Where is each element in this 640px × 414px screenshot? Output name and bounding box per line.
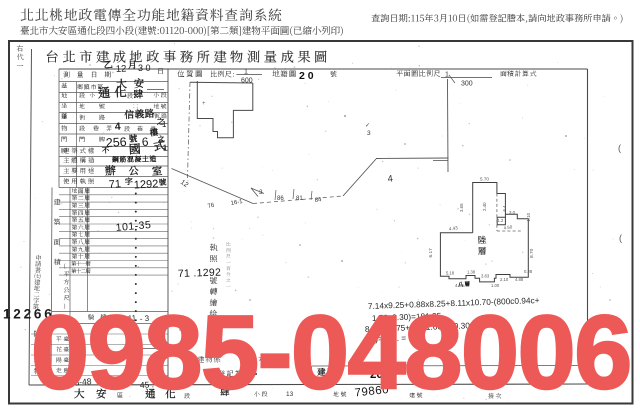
svg-text:一: 一 [226,283,231,290]
svg-text:肆: 肆 [133,85,145,101]
svg-text:臺北市大安區通化段四小段(建號:01120-000)[第二類: 臺北市大安區通化段四小段(建號:01120-000)[第二類]建物平面圖(已縮小… [20,23,344,37]
svg-text:4.88: 4.88 [515,277,524,282]
svg-text:0.28: 0.28 [524,269,533,274]
svg-text:街: 街 [79,112,86,121]
svg-text:巷: 巷 [136,124,143,133]
svg-text:81: 81 [296,196,303,202]
svg-text:比例尺:: 比例尺: [210,70,235,80]
svg-text:地: 地 [79,101,85,110]
svg-text:1.10: 1.10 [526,212,531,221]
svg-text:2.40: 2.40 [482,202,487,211]
svg-text:巷: 巷 [92,123,99,132]
svg-text:坐: 坐 [61,101,68,110]
svg-text:71 .1292: 71 .1292 [178,266,222,280]
svg-text:段: 段 [124,124,130,133]
svg-text:地: 地 [61,91,67,100]
svg-text:小: 小 [90,91,96,99]
svg-text:號: 號 [98,101,105,110]
svg-text:平面圖比例尺: 平面圖比例尺 [396,69,441,79]
svg-text:物: 物 [61,123,68,132]
svg-text:式: 式 [152,136,166,155]
svg-text:使用執照: 使用執照 [63,177,96,186]
svg-text:4: 4 [114,121,121,133]
svg-text:1.38: 1.38 [467,270,476,275]
svg-text:面積計算式: 面積計算式 [500,68,537,78]
svg-text:地號: 地號 [154,102,169,111]
svg-text:號: 號 [330,68,337,78]
svg-text:路: 路 [99,112,105,121]
svg-text:北北桃地政電傳全功能地籍資料查詢系統: 北北桃地政電傳全功能地籍資料查詢系統 [20,4,283,24]
svg-text:日: 日 [157,67,164,77]
svg-text:2 0: 2 0 [299,70,314,82]
svg-text:第十二層: 第十二層 [71,267,91,275]
svg-text:月: 月 [127,58,137,71]
svg-text:基: 基 [61,81,68,90]
svg-text:字: 字 [125,176,134,187]
svg-text:段: 段 [79,123,85,132]
svg-text:執: 執 [210,242,218,253]
svg-text:(: ( [618,143,621,153]
svg-text:面: 面 [54,238,61,248]
svg-text:台北市建成地政事務所建物測量成果圖: 台北市建成地政事務所建物測量成果圖 [46,46,331,65]
svg-text:1.2: 1.2 [498,218,504,223]
svg-text:不: 不 [102,145,111,156]
svg-text:一: 一 [17,61,24,71]
svg-text:5.70: 5.70 [480,177,489,182]
svg-text:弄: 弄 [106,123,112,132]
svg-text:辦: 辦 [104,162,116,179]
svg-text:(: ( [619,233,622,243]
svg-text:位置圖: 位置圖 [177,68,204,79]
svg-text:主體構造: 主體構造 [63,156,96,165]
svg-text:層: 層 [477,245,487,258]
svg-text:信義路: 信義路 [124,106,156,122]
svg-text:3 0: 3 0 [138,63,151,73]
svg-text:0985-048006: 0985-048006 [31,295,631,411]
svg-text:3.0: 3.0 [509,210,516,215]
svg-text:築: 築 [53,218,61,228]
svg-text:3.65: 3.65 [459,203,464,212]
svg-text:5.18: 5.18 [446,271,455,276]
svg-text:+: + [202,101,206,107]
svg-text:12: 12 [116,63,127,75]
svg-text:3: 3 [259,189,263,196]
svg-text:照: 照 [210,253,218,264]
svg-text:建築式樣: 建築式樣 [62,146,96,155]
svg-text:71: 71 [108,178,121,191]
svg-text:八層: 八層 [458,280,471,289]
svg-text:6.4: 6.4 [502,205,507,212]
svg-text:乙: 乙 [103,57,113,71]
svg-text:3.83: 3.83 [481,274,490,279]
svg-text:2.10: 2.10 [500,277,509,282]
svg-text:小段: 小段 [153,90,169,99]
svg-text:通化: 通化 [97,82,131,102]
svg-text:地籍圖: 地籍圖 [272,68,297,79]
svg-text:牌: 牌 [98,134,105,143]
svg-text:6.17: 6.17 [428,248,434,258]
svg-text:建: 建 [54,198,61,208]
svg-text:8.70: 8.70 [529,248,535,258]
svg-text:查詢日期:115年3月10日(如需登記謄本,請向地政事務所申: 查詢日期:115年3月10日(如需登記謄本,請向地政事務所申請。) [371,11,623,25]
svg-text:號: 號 [159,177,168,188]
svg-text:1: 1 [162,120,167,129]
svg-text:建: 建 [61,112,68,121]
svg-text:主要用途: 主要用途 [63,166,96,175]
svg-text:門: 門 [79,134,85,143]
svg-text:積: 積 [54,258,61,268]
svg-text:段: 段 [79,90,85,99]
svg-text:✓: ✓ [365,123,370,129]
svg-text:6: 6 [141,135,149,149]
svg-text:1292: 1292 [134,178,159,191]
svg-text:300: 300 [461,81,473,88]
svg-text:1.00: 1.00 [491,283,500,288]
svg-text:86: 86 [277,196,284,202]
svg-text:3: 3 [367,130,371,137]
